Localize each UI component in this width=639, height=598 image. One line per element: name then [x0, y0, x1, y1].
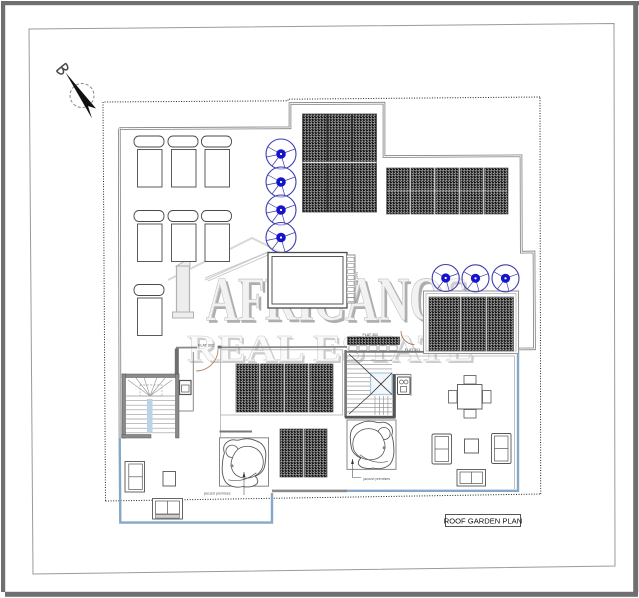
svg-text:FLAT 301: FLAT 301	[405, 348, 420, 352]
svg-text:ROOF GARDEN PLAN: ROOF GARDEN PLAN	[444, 517, 522, 526]
svg-text:FLAT 302: FLAT 302	[355, 272, 359, 285]
svg-text:FLAT 302: FLAT 302	[363, 333, 378, 337]
svg-text:jacuzzi premises: jacuzzi premises	[363, 477, 391, 481]
svg-text:FLAT 302: FLAT 302	[198, 343, 213, 347]
svg-text:jacuzzi premises: jacuzzi premises	[203, 492, 231, 496]
